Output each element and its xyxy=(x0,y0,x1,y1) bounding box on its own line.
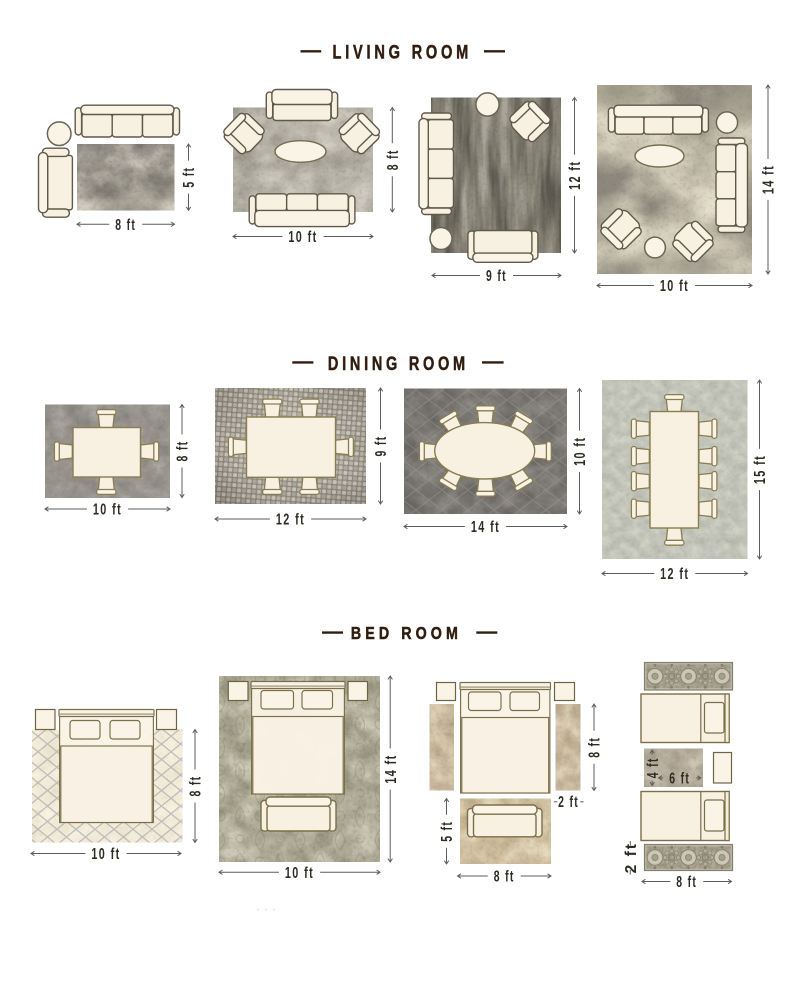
svg-text:2 ft: 2 ft xyxy=(558,794,579,811)
svg-text:8 ft: 8 ft xyxy=(587,737,604,758)
svg-text:5 ft: 5 ft xyxy=(439,821,456,842)
svg-text:DINING ROOM: DINING ROOM xyxy=(328,353,469,375)
svg-text:2 ft: 2 ft xyxy=(623,842,640,873)
svg-text:4 ft: 4 ft xyxy=(645,757,662,778)
svg-text:10 ft: 10 ft xyxy=(572,437,589,466)
svg-text:14 ft: 14 ft xyxy=(761,165,778,194)
svg-text:8 ft: 8 ft xyxy=(115,217,136,234)
svg-text:6 ft: 6 ft xyxy=(669,771,690,788)
svg-text:12 ft: 12 ft xyxy=(276,512,305,529)
svg-text:10 ft: 10 ft xyxy=(93,502,122,519)
svg-text:8 ft: 8 ft xyxy=(494,869,515,886)
svg-text:LIVING ROOM: LIVING ROOM xyxy=(333,41,473,63)
svg-text:10 ft: 10 ft xyxy=(288,229,317,246)
svg-text:12 ft: 12 ft xyxy=(660,566,689,583)
svg-text:8 ft: 8 ft xyxy=(188,776,205,797)
svg-text:10 ft: 10 ft xyxy=(91,846,120,863)
svg-text:9 ft: 9 ft xyxy=(486,268,507,285)
svg-text:12 ft: 12 ft xyxy=(567,161,584,190)
svg-text:10 ft: 10 ft xyxy=(285,865,314,882)
svg-text:14 ft: 14 ft xyxy=(383,754,400,783)
svg-text:14 ft: 14 ft xyxy=(471,519,500,536)
svg-text:9 ft: 9 ft xyxy=(373,436,390,457)
svg-text:8 ft: 8 ft xyxy=(175,441,192,462)
svg-text:BED ROOM: BED ROOM xyxy=(351,623,462,643)
svg-text:5 ft: 5 ft xyxy=(181,167,198,188)
svg-text:8 ft: 8 ft xyxy=(385,149,402,170)
svg-text:15 ft: 15 ft xyxy=(752,455,769,484)
svg-text:10 ft: 10 ft xyxy=(660,278,689,295)
svg-text:8 ft: 8 ft xyxy=(676,874,697,891)
